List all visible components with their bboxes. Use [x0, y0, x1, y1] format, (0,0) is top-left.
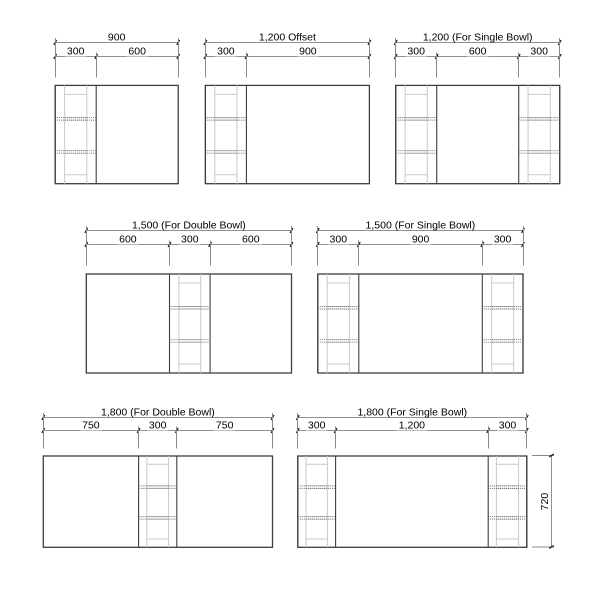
- svg-text:300: 300: [407, 45, 425, 57]
- svg-text:600: 600: [469, 45, 487, 57]
- svg-text:600: 600: [242, 233, 260, 245]
- svg-text:900: 900: [412, 233, 430, 245]
- svg-text:300: 300: [530, 45, 548, 57]
- svg-text:300: 300: [499, 419, 517, 431]
- svg-text:600: 600: [119, 233, 137, 245]
- svg-text:1,200: 1,200: [399, 419, 425, 431]
- svg-text:1,200 (For Single Bowl): 1,200 (For Single Bowl): [423, 31, 533, 43]
- svg-text:1,800 (For Single Bowl): 1,800 (For Single Bowl): [357, 406, 467, 418]
- svg-text:1,800 (For Double Bowl): 1,800 (For Double Bowl): [101, 406, 215, 418]
- svg-text:300: 300: [330, 233, 348, 245]
- svg-text:300: 300: [149, 419, 167, 431]
- svg-text:300: 300: [67, 45, 85, 57]
- svg-text:900: 900: [108, 31, 126, 43]
- svg-text:1,500 (For Double Bowl): 1,500 (For Double Bowl): [132, 219, 246, 231]
- svg-text:750: 750: [82, 419, 100, 431]
- svg-text:300: 300: [494, 233, 512, 245]
- svg-text:300: 300: [217, 45, 235, 57]
- svg-text:1,200 Offset: 1,200 Offset: [259, 31, 316, 43]
- svg-text:1,500 (For Single Bowl): 1,500 (For Single Bowl): [366, 219, 476, 231]
- svg-text:750: 750: [216, 419, 234, 431]
- svg-text:300: 300: [181, 233, 199, 245]
- svg-text:600: 600: [128, 45, 146, 57]
- svg-text:300: 300: [308, 419, 326, 431]
- svg-text:900: 900: [299, 45, 317, 57]
- svg-text:720: 720: [539, 493, 551, 511]
